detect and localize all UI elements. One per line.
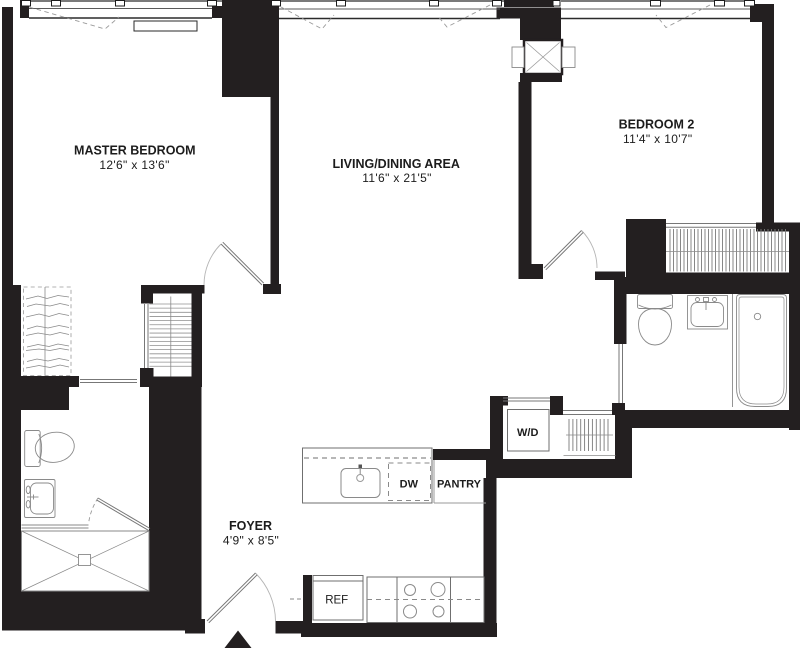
svg-text:W/D: W/D xyxy=(517,427,538,439)
svg-text:PANTRY: PANTRY xyxy=(437,479,482,491)
svg-text:REF: REF xyxy=(325,595,348,607)
svg-text:FOYER: FOYER xyxy=(229,519,272,533)
svg-text:BEDROOM 2: BEDROOM 2 xyxy=(619,118,695,132)
svg-text:11'4" x 10'7": 11'4" x 10'7" xyxy=(623,132,692,146)
svg-text:MASTER BEDROOM: MASTER BEDROOM xyxy=(74,143,196,157)
svg-text:11'6" x 21'5": 11'6" x 21'5" xyxy=(362,171,431,185)
svg-text:LIVING/DINING AREA: LIVING/DINING AREA xyxy=(333,157,460,171)
svg-text:12'6" x 13'6": 12'6" x 13'6" xyxy=(99,158,169,172)
svg-text:4'9" x 8'5": 4'9" x 8'5" xyxy=(223,534,279,548)
svg-text:DW: DW xyxy=(400,479,419,491)
